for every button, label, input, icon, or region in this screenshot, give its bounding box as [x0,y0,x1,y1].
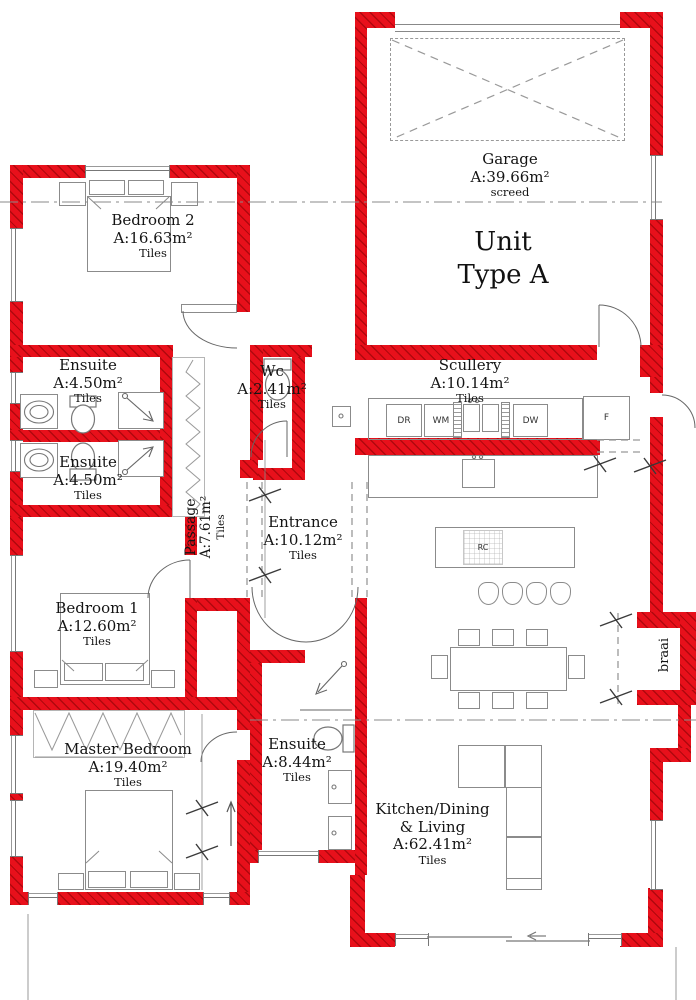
room-area: A:10.12m² [233,532,373,550]
room-floor: Tiles [28,392,148,406]
room-name: Ensuite [237,736,357,754]
appliance-text: DW [523,416,539,426]
wall-segment [355,12,395,28]
dining-table [450,647,567,691]
room-name: Entrance [233,514,373,532]
room-name: braai [657,638,672,672]
appliance-text: WM [433,416,450,426]
room-area: A:12.60m² [27,618,167,636]
room-name: Garage [440,151,580,169]
appliance-label-dw: DW [513,404,548,437]
room-floor: Tiles [83,247,223,261]
garage-roof-outline [390,38,625,141]
wall-segment [650,762,663,820]
dining-chair [492,629,514,646]
wall-segment [10,697,250,710]
room-floor: Tiles [46,776,210,790]
room-area: A:4.50m² [28,472,148,490]
room-floor: Tiles [360,854,505,868]
bed-pillow [128,180,164,195]
room-floor: Tiles [212,398,332,412]
wall-segment [650,12,663,155]
nightstand [151,670,175,688]
dining-chair [526,629,548,646]
window [650,820,663,890]
room-label-entrance: Entrance A:10.12m² Tiles [233,514,373,563]
room-label-bedroom1: Bedroom 1 A:12.60m² Tiles [27,600,167,649]
wall-segment [355,12,367,345]
bed-pillow [130,871,168,888]
wall-segment [620,933,663,947]
direction-arrow [227,802,235,846]
couch [458,745,542,788]
room-floor: Tiles [400,392,540,406]
nightstand [59,182,86,206]
room-name: Master Bedroom [46,741,210,759]
appliance-label-wm: WM [424,404,458,437]
room-name: Wc [212,363,332,381]
dining-chair [568,655,585,679]
wall-segment [640,345,663,377]
room-name: Bedroom 2 [83,212,223,230]
appliance-label-fridge: F [583,396,630,440]
room-floor: Tiles [237,771,357,785]
room-name: Scullery [400,357,540,375]
nightstand [171,182,198,206]
wall-segment [250,650,305,663]
room-area: A:39.66m² [440,169,580,187]
window [10,735,23,794]
couch-cushion-line [504,746,506,787]
wall-segment [237,598,250,730]
room-name: Kitchen/Dining [360,801,505,819]
bed-pillow [89,180,125,195]
sink-bowl [463,404,480,432]
wall-segment [237,165,250,312]
window [395,933,429,946]
bed-pillow [88,871,126,888]
window [10,228,23,302]
dining-chair [431,655,448,679]
bar-stool [526,582,547,605]
sliding-door [427,932,590,941]
room-label-wc: Wc A:2.41m² Tiles [212,363,332,412]
room-label-ensuite3: Ensuite A:8.44m² Tiles [237,736,357,785]
dining-chair [492,692,514,709]
nightstand [174,873,200,890]
room-name: Bedroom 1 [27,600,167,618]
window [650,155,663,220]
sink-bowl [482,404,499,432]
room-label-garage: Garage A:39.66m² screed [440,151,580,200]
room-name: Passage [183,498,200,555]
plan-title-line2: Type A [413,259,593,292]
room-floor: Tiles [27,635,167,649]
room-area: A:8.44m² [237,754,357,772]
plan-title: Unit Type A [413,226,593,291]
room-floor: Tiles [215,514,227,539]
appliance-text: F [604,413,609,423]
room-area: A:4.50m² [28,375,148,393]
room-area: A:16.63m² [83,230,223,248]
bar-stool [502,582,523,605]
window [203,892,230,905]
room-floor: screed [440,186,580,200]
bar-stool [550,582,571,605]
room-label-master-bedroom: Master Bedroom A:19.40m² Tiles [46,741,210,790]
wall-segment [350,933,395,947]
kitchen-island [435,527,575,568]
wall-segment [650,417,663,612]
couch-cushion-line [507,836,541,838]
door-leaf [181,304,237,313]
appliance-label-dr: DR [386,404,422,437]
room-area: A:19.40m² [46,759,210,777]
room-name: & Living [360,819,505,837]
plan-title-line1: Unit [413,226,593,259]
hand-basin [332,406,351,427]
room-area: A:7.61m² [199,496,215,559]
couch [506,787,542,883]
window [258,850,319,863]
kitchen-sink [462,459,495,488]
dining-chair [458,629,480,646]
wall-segment [253,468,302,480]
room-label-braai: braai [648,620,682,690]
room-label-scullery: Scullery A:10.14m² Tiles [400,357,540,406]
room-name: Ensuite [28,357,148,375]
wall-segment [355,438,600,455]
window [85,165,170,178]
wall-segment [10,505,173,517]
appliance-text: RC [478,543,489,552]
dining-chair [526,692,548,709]
room-area: A:62.41m² [360,836,505,854]
window [10,800,23,857]
bar-stool [478,582,499,605]
appliance-label-hob: RC [463,530,503,565]
window [588,933,622,946]
window [28,892,58,905]
braai-wall [637,690,696,705]
window [10,555,23,652]
garage-door [395,24,620,32]
room-label-kitchen-living: Kitchen/Dining & Living A:62.41m² Tiles [360,801,505,868]
nightstand [58,873,84,890]
couch-armrest [506,878,542,890]
wall-segment [185,598,197,710]
room-label-bedroom2: Bedroom 2 A:16.63m² Tiles [83,212,223,261]
bed-pillow [64,663,103,681]
nightstand [34,670,58,688]
room-floor: Tiles [28,489,148,503]
wall-segment [650,748,691,762]
room-area: A:10.14m² [400,375,540,393]
sink-drainer [501,402,510,438]
floor-plan: Bedroom 2 A:16.63m² Tiles Garage A:39.66… [0,0,696,1000]
dining-chair [458,692,480,709]
room-label-ensuite1: Ensuite A:4.50m² Tiles [28,357,148,406]
room-name: Ensuite [28,454,148,472]
bed-pillow [105,663,144,681]
room-area: A:2.41m² [212,381,332,399]
room-label-ensuite2: Ensuite A:4.50m² Tiles [28,454,148,503]
vanity-basin [328,816,352,850]
room-floor: Tiles [233,549,373,563]
appliance-text: DR [397,416,410,426]
